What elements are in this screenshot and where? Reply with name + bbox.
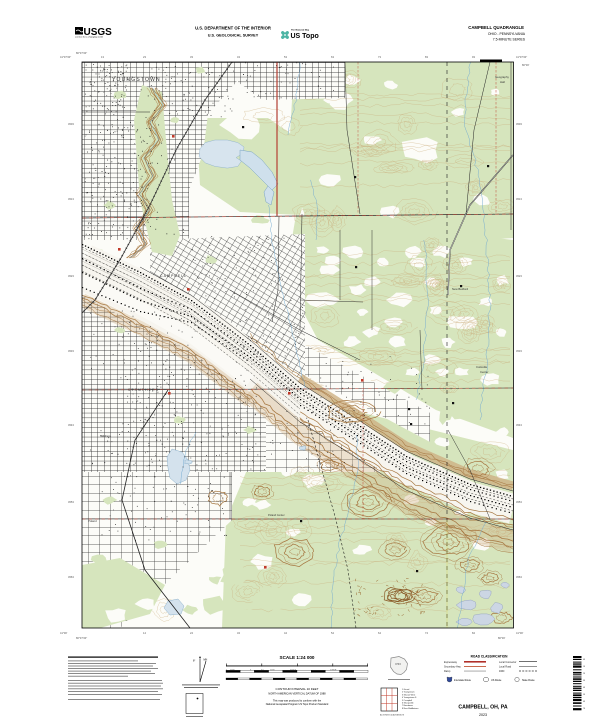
svg-text:Local Road: Local Road <box>499 666 512 669</box>
svg-text:38: 38 <box>583 680 585 682</box>
svg-text:08: 08 <box>583 659 585 661</box>
svg-text:7.5-MINUTE SERIES: 7.5-MINUTE SERIES <box>493 38 526 42</box>
svg-text:18: 18 <box>583 666 585 668</box>
svg-text:Ramp: Ramp <box>444 670 451 673</box>
svg-text:28: 28 <box>583 673 585 675</box>
svg-text:Struthers: Struthers <box>100 434 111 438</box>
svg-text:4503: 4503 <box>516 122 522 126</box>
svg-text:NORTH AMERICAN VERTICAL DATUM: NORTH AMERICAN VERTICAL DATUM OF 1988 <box>268 692 326 696</box>
svg-text:Coitsville: Coitsville <box>476 365 488 369</box>
svg-text:1 Girard: 1 Girard <box>402 689 409 691</box>
svg-text:4513: 4513 <box>516 197 522 201</box>
svg-text:7 Boardman: 7 Boardman <box>402 705 413 707</box>
svg-text:Interstate Route: Interstate Route <box>454 679 472 682</box>
svg-text:4563: 4563 <box>516 575 522 579</box>
svg-text:4553: 4553 <box>516 500 522 504</box>
svg-text:New Bedford: New Bedford <box>452 287 469 291</box>
svg-text:YOUNGSTOWN: YOUNGSTOWN <box>112 77 161 83</box>
svg-text:4533: 4533 <box>516 349 522 353</box>
svg-text:4523: 4523 <box>516 274 522 278</box>
svg-text:4533: 4533 <box>68 349 74 353</box>
svg-text:STRUTHERS: STRUTHERS <box>128 388 159 392</box>
svg-text:U.S. GEOLOGICAL SURVEY: U.S. GEOLOGICAL SURVEY <box>208 34 259 38</box>
svg-text:Hall: Hall <box>500 80 505 84</box>
svg-text:US Topo: US Topo <box>291 33 319 40</box>
svg-text:Center: Center <box>480 370 488 374</box>
svg-text:41°00': 41°00' <box>60 631 68 635</box>
svg-text:OHIO - PENNSYLVANIA: OHIO - PENNSYLVANIA <box>488 32 526 36</box>
svg-text:2023: 2023 <box>479 713 487 717</box>
svg-text:4WD: 4WD <box>499 670 505 673</box>
svg-text:CAMPBELL QUADRANGLE: CAMPBELL QUADRANGLE <box>468 25 524 30</box>
svg-text:CONTOUR INTERVAL 10 FEET: CONTOUR INTERVAL 10 FEET <box>276 687 319 691</box>
svg-text:OHIO: OHIO <box>395 663 401 666</box>
svg-text:4513: 4513 <box>68 197 74 201</box>
svg-text:80°37'30": 80°37'30" <box>76 51 87 55</box>
svg-text:Geography: Geography <box>495 75 509 79</box>
svg-text:80°30': 80°30' <box>498 636 506 640</box>
svg-text:41°00': 41°00' <box>516 631 524 635</box>
svg-text:science for a changing world: science for a changing world <box>75 35 104 38</box>
svg-text:4543: 4543 <box>68 423 74 427</box>
svg-text:4 Youngstown S: 4 Youngstown S <box>402 696 417 699</box>
svg-text:8 New Middletown: 8 New Middletown <box>402 707 418 710</box>
svg-text:MN: MN <box>204 659 208 662</box>
svg-text:4523: 4523 <box>68 274 74 278</box>
svg-text:48: 48 <box>583 687 585 689</box>
svg-text:68: 68 <box>583 701 585 703</box>
svg-text:Poland Center: Poland Center <box>268 513 285 517</box>
svg-text:41°07'30": 41°07'30" <box>516 55 527 59</box>
svg-text:80°30': 80°30' <box>522 63 530 67</box>
svg-text:The National Map: The National Map <box>291 28 310 31</box>
svg-text:U.S. DEPARTMENT OF THE INTERIO: U.S. DEPARTMENT OF THE INTERIOR <box>195 26 271 31</box>
svg-text:Secondary Hwy: Secondary Hwy <box>444 666 462 669</box>
svg-text:ADJOINING QUADRANGLES: ADJOINING QUADRANGLES <box>380 714 405 717</box>
svg-text:6 Sharpsville: 6 Sharpsville <box>402 703 414 705</box>
svg-text:National Geospatial Program US: National Geospatial Program US Topo Prod… <box>266 703 329 706</box>
svg-text:41°07'30": 41°07'30" <box>60 55 71 59</box>
svg-text:4503: 4503 <box>68 122 74 126</box>
svg-text:State Route: State Route <box>522 679 535 682</box>
svg-text:Expressway: Expressway <box>444 661 458 664</box>
svg-text:CAMPBELL, OH, PA: CAMPBELL, OH, PA <box>458 705 507 711</box>
svg-text:ROAD CLASSIFICATION: ROAD CLASSIFICATION <box>471 655 508 659</box>
svg-text:US Route: US Route <box>491 679 502 682</box>
svg-text:CAMPBELL: CAMPBELL <box>160 274 187 278</box>
svg-text:80°37'30": 80°37'30" <box>76 636 87 640</box>
svg-text:8°: 8° <box>193 660 195 663</box>
svg-text:3 Sharon West: 3 Sharon West <box>402 693 416 696</box>
svg-text:78: 78 <box>583 708 585 710</box>
svg-text:58: 58 <box>583 694 585 696</box>
svg-text:4553: 4553 <box>68 500 74 504</box>
svg-text:Local Connector: Local Connector <box>499 661 517 664</box>
svg-text:4563: 4563 <box>68 575 74 579</box>
svg-text:Poland: Poland <box>88 519 97 523</box>
svg-text:SCALE 1:24 000: SCALE 1:24 000 <box>280 655 315 660</box>
svg-text:2 Youngstown: 2 Youngstown <box>402 691 414 694</box>
svg-text:1 MILE: 1 MILE <box>330 669 337 671</box>
svg-text:4543: 4543 <box>516 423 522 427</box>
svg-text:5 Campbell: 5 Campbell <box>402 700 413 702</box>
